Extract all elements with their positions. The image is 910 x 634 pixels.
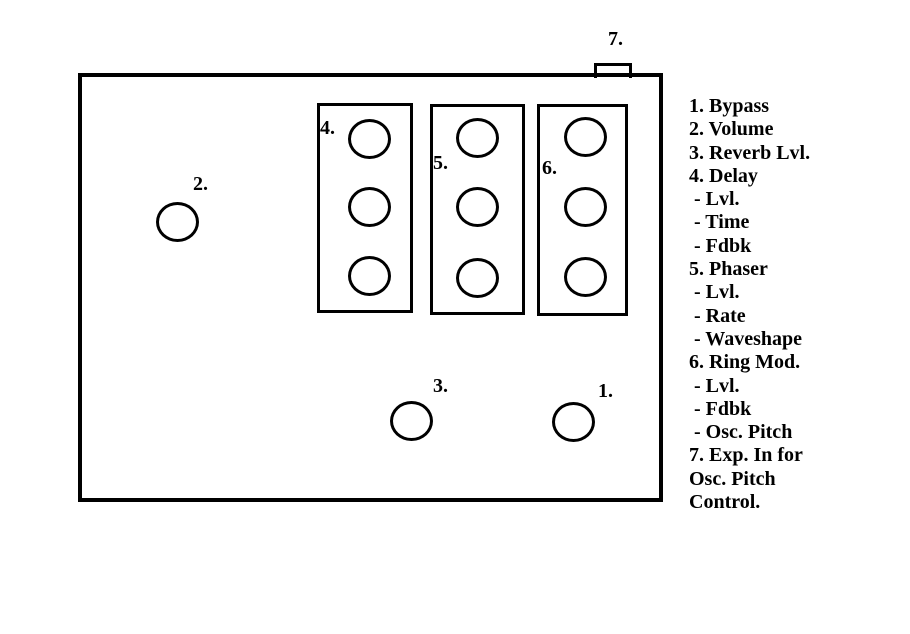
legend-line: - Lvl. bbox=[689, 281, 904, 304]
legend-line: 5. Phaser bbox=[689, 258, 904, 281]
legend-line: Osc. Pitch bbox=[689, 468, 904, 491]
label-ringmod: 6. bbox=[542, 157, 557, 179]
legend-line: 2. Volume bbox=[689, 118, 904, 141]
legend-line: 1. Bypass bbox=[689, 95, 904, 118]
reverb-lvl-knob bbox=[390, 401, 433, 441]
pedal-diagram: 7. 2. 4. 5. 6. 3. 1. 1. Bypass 2. Volume… bbox=[0, 0, 910, 634]
legend-line: - Lvl. bbox=[689, 188, 904, 211]
legend-line: - Lvl. bbox=[689, 375, 904, 398]
ringmod-fdbk-knob bbox=[564, 187, 607, 227]
legend: 1. Bypass 2. Volume 3. Reverb Lvl. 4. De… bbox=[689, 95, 904, 514]
legend-line: - Fdbk bbox=[689, 398, 904, 421]
legend-line: 3. Reverb Lvl. bbox=[689, 142, 904, 165]
phaser-lvl-knob bbox=[456, 118, 499, 158]
legend-line: 4. Delay bbox=[689, 165, 904, 188]
delay-time-knob bbox=[348, 187, 391, 227]
legend-line: - Fdbk bbox=[689, 235, 904, 258]
delay-lvl-knob bbox=[348, 119, 391, 159]
label-bypass: 1. bbox=[598, 380, 613, 402]
phaser-waveshape-knob bbox=[456, 258, 499, 298]
legend-line: - Waveshape bbox=[689, 328, 904, 351]
volume-knob bbox=[156, 202, 199, 242]
legend-line: 7. Exp. In for bbox=[689, 444, 904, 467]
label-phaser: 5. bbox=[433, 152, 448, 174]
label-delay: 4. bbox=[320, 117, 335, 139]
label-reverb: 3. bbox=[433, 375, 448, 397]
legend-line: - Rate bbox=[689, 305, 904, 328]
delay-fdbk-knob bbox=[348, 256, 391, 296]
ringmod-osc-pitch-knob bbox=[564, 257, 607, 297]
legend-line: Control. bbox=[689, 491, 904, 514]
label-exp-jack: 7. bbox=[608, 28, 623, 50]
legend-line: 6. Ring Mod. bbox=[689, 351, 904, 374]
legend-line: - Time bbox=[689, 211, 904, 234]
legend-line: - Osc. Pitch bbox=[689, 421, 904, 444]
label-volume: 2. bbox=[193, 173, 208, 195]
ringmod-lvl-knob bbox=[564, 117, 607, 157]
bypass-switch bbox=[552, 402, 595, 442]
phaser-rate-knob bbox=[456, 187, 499, 227]
